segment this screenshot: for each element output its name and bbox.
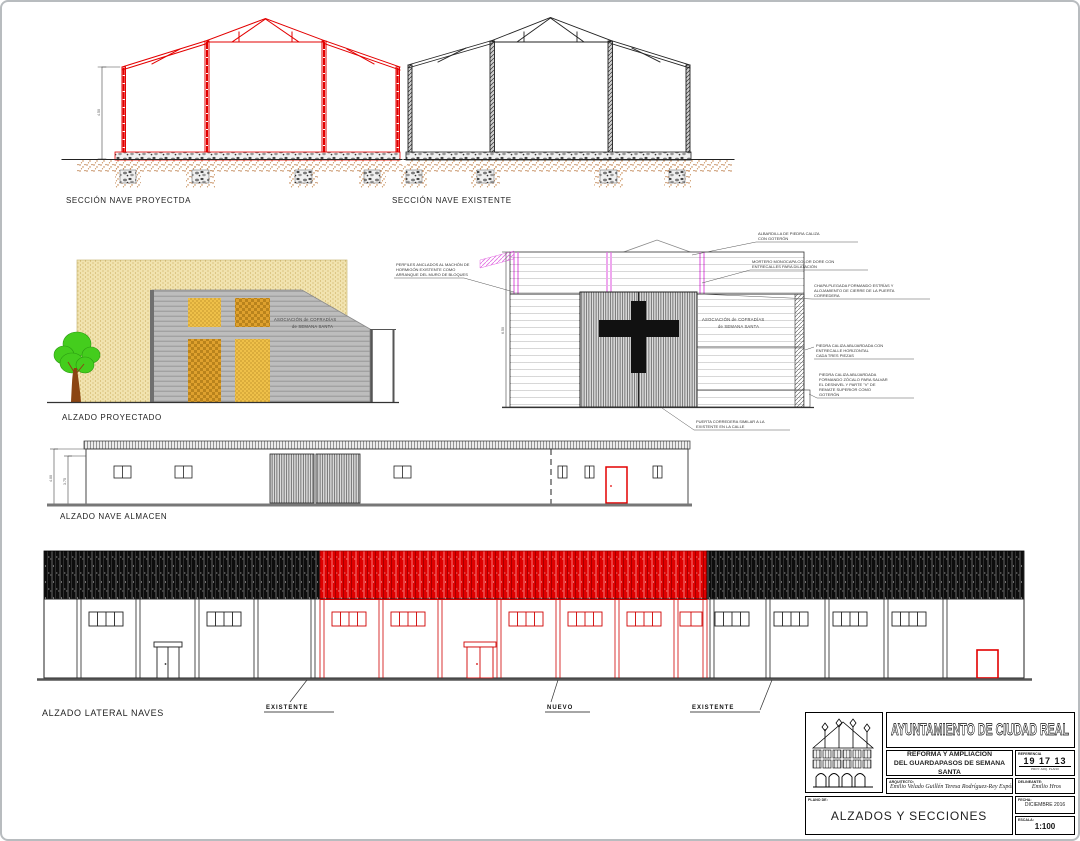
label-existente-left: EXISTENTE	[266, 705, 308, 711]
alzado-nave-almacen-drawing: 4.00 3.75	[47, 441, 692, 505]
annotation-albardilla: ALBARDILLA DE PIEDRA CALIZA CON GOTERÓN	[692, 231, 858, 255]
church-logo-icon	[806, 713, 881, 790]
drawing-sheet: 4.50 SECCIÓN NAVE PROYECTDA SE	[0, 0, 1080, 841]
sign-line2: de SEMANA SANTA	[292, 324, 333, 329]
plano-value: ALZADOS Y SECCIONES	[806, 809, 1012, 823]
project-line2: DEL GUARDAPASOS DE SEMANA SANTA	[887, 759, 1012, 777]
plano-cell: PLANO DE: ALZADOS Y SECCIONES	[805, 796, 1013, 835]
dim-seccion: 4.50	[97, 109, 101, 116]
sign-line1: ASOCIACIÓN de COFRADÍAS	[274, 317, 336, 322]
title-block: AYUNTAMIENTO DE CIUDAD REAL REFORMA Y AM…	[801, 708, 1079, 839]
project-name-cell: REFORMA Y AMPLIACIÓN DEL GUARDAPASOS DE …	[886, 750, 1013, 776]
annotation-piedra-zocalo: PIEDRA CALIZA ABUJARDADA FORMANDO ZÓCALO…	[809, 372, 914, 398]
arquitecto-cell: ARQUITECTO: Emilio Velado Guillén Teresa…	[886, 778, 1013, 794]
annotation-perfiles: PERFILES ANCLADOS AL MACHÓN DE HORMIGÓN …	[394, 262, 514, 292]
arquitecto-names: Emilio Velado Guillén Teresa Rodríguez-R…	[887, 784, 1012, 790]
label-nuevo: NUEVO	[547, 705, 573, 711]
svg-text:CADA TRES PIEZAS: CADA TRES PIEZAS	[816, 353, 854, 358]
referencia-sub: PROY. ARQ. PLANO	[1019, 766, 1071, 771]
seccion-nave-existente-drawing	[401, 18, 734, 189]
sign-line1-right: ASOCIACIÓN de COFRADÍAS	[702, 317, 764, 322]
label-alzado-proyectado: ALZADO PROYECTADO	[62, 413, 162, 422]
svg-text:CORREDERA: CORREDERA	[814, 293, 840, 298]
svg-text:ARRANQUE DEL MURO DE BLOQUES: ARRANQUE DEL MURO DE BLOQUES	[396, 272, 468, 277]
svg-text:ENTRECALLES PARA DILATACIÓN: ENTRECALLES PARA DILATACIÓN	[752, 264, 817, 269]
label-existente-right: EXISTENTE	[692, 705, 734, 711]
label-alzado-lateral-naves: ALZADO LATERAL NAVES	[42, 708, 164, 718]
escala-value: 1:100	[1016, 822, 1074, 831]
referencia-cell: REFERENCIA 19 17 13 PROY. ARQ. PLANO	[1015, 750, 1075, 776]
dim-almacen-int: 3.75	[63, 478, 67, 485]
dim-almacen-total: 4.00	[49, 475, 53, 482]
escala-cell: ESCALA: 1:100	[1015, 816, 1075, 835]
referencia-value: 19 17 13	[1016, 756, 1074, 766]
alzado-proyectado-drawing: ASOCIACIÓN de COFRADÍAS de SEMANA SANTA	[47, 260, 399, 403]
dim-elev: 6.50	[501, 327, 505, 334]
municipality-cell: AYUNTAMIENTO DE CIUDAD REAL	[886, 712, 1075, 748]
label-seccion-existente: SECCIÓN NAVE EXISTENTE	[392, 196, 512, 205]
red-door-almacen	[606, 467, 627, 503]
fecha-cell: FECHA: DICIEMBRE 2016	[1015, 796, 1075, 814]
red-door-right	[977, 650, 998, 678]
delineante-cell: DELINEANTE: Emilio Hros	[1015, 778, 1075, 794]
alzado-existente-detalle-drawing: ASOCIACIÓN de COFRADÍAS de SEMANA SANTA …	[394, 231, 930, 430]
sign-line2-right: de SEMANA SANTA	[718, 324, 759, 329]
label-seccion-proyectada: SECCIÓN NAVE PROYECTDA	[66, 196, 191, 205]
label-alzado-nave-almacen: ALZADO NAVE ALMACEN	[60, 512, 167, 521]
municipality-title: AYUNTAMIENTO DE CIUDAD REAL	[891, 721, 1069, 739]
project-line1: REFORMA Y AMPLIACIÓN	[907, 750, 992, 759]
seccion-nave-proyectada-drawing: 4.50	[62, 19, 402, 189]
annotation-puerta: PUERTA CORREDERA SIMILAR A LA EXISTENTE …	[662, 408, 790, 430]
black-double-door	[154, 642, 182, 678]
annotation-piedra-entrecalle: PIEDRA CALIZA ABUJARDADA CON ENTRECALLE …	[805, 343, 914, 359]
svg-text:CON GOTERÓN: CON GOTERÓN	[758, 236, 788, 241]
logo-cell	[805, 712, 883, 793]
svg-text:EXISTENTE EN LA CALLE: EXISTENTE EN LA CALLE	[696, 424, 745, 429]
delineante-name: Emilio Hros	[1016, 784, 1074, 790]
red-double-door	[464, 642, 496, 678]
svg-text:GOTERÓN: GOTERÓN	[819, 392, 839, 397]
fecha-value: DICIEMBRE 2016	[1016, 802, 1074, 809]
plano-label: PLANO DE:	[806, 797, 1012, 802]
alzado-lateral-naves-drawing: EXISTENTE NUEVO EXISTENTE	[37, 551, 1032, 712]
